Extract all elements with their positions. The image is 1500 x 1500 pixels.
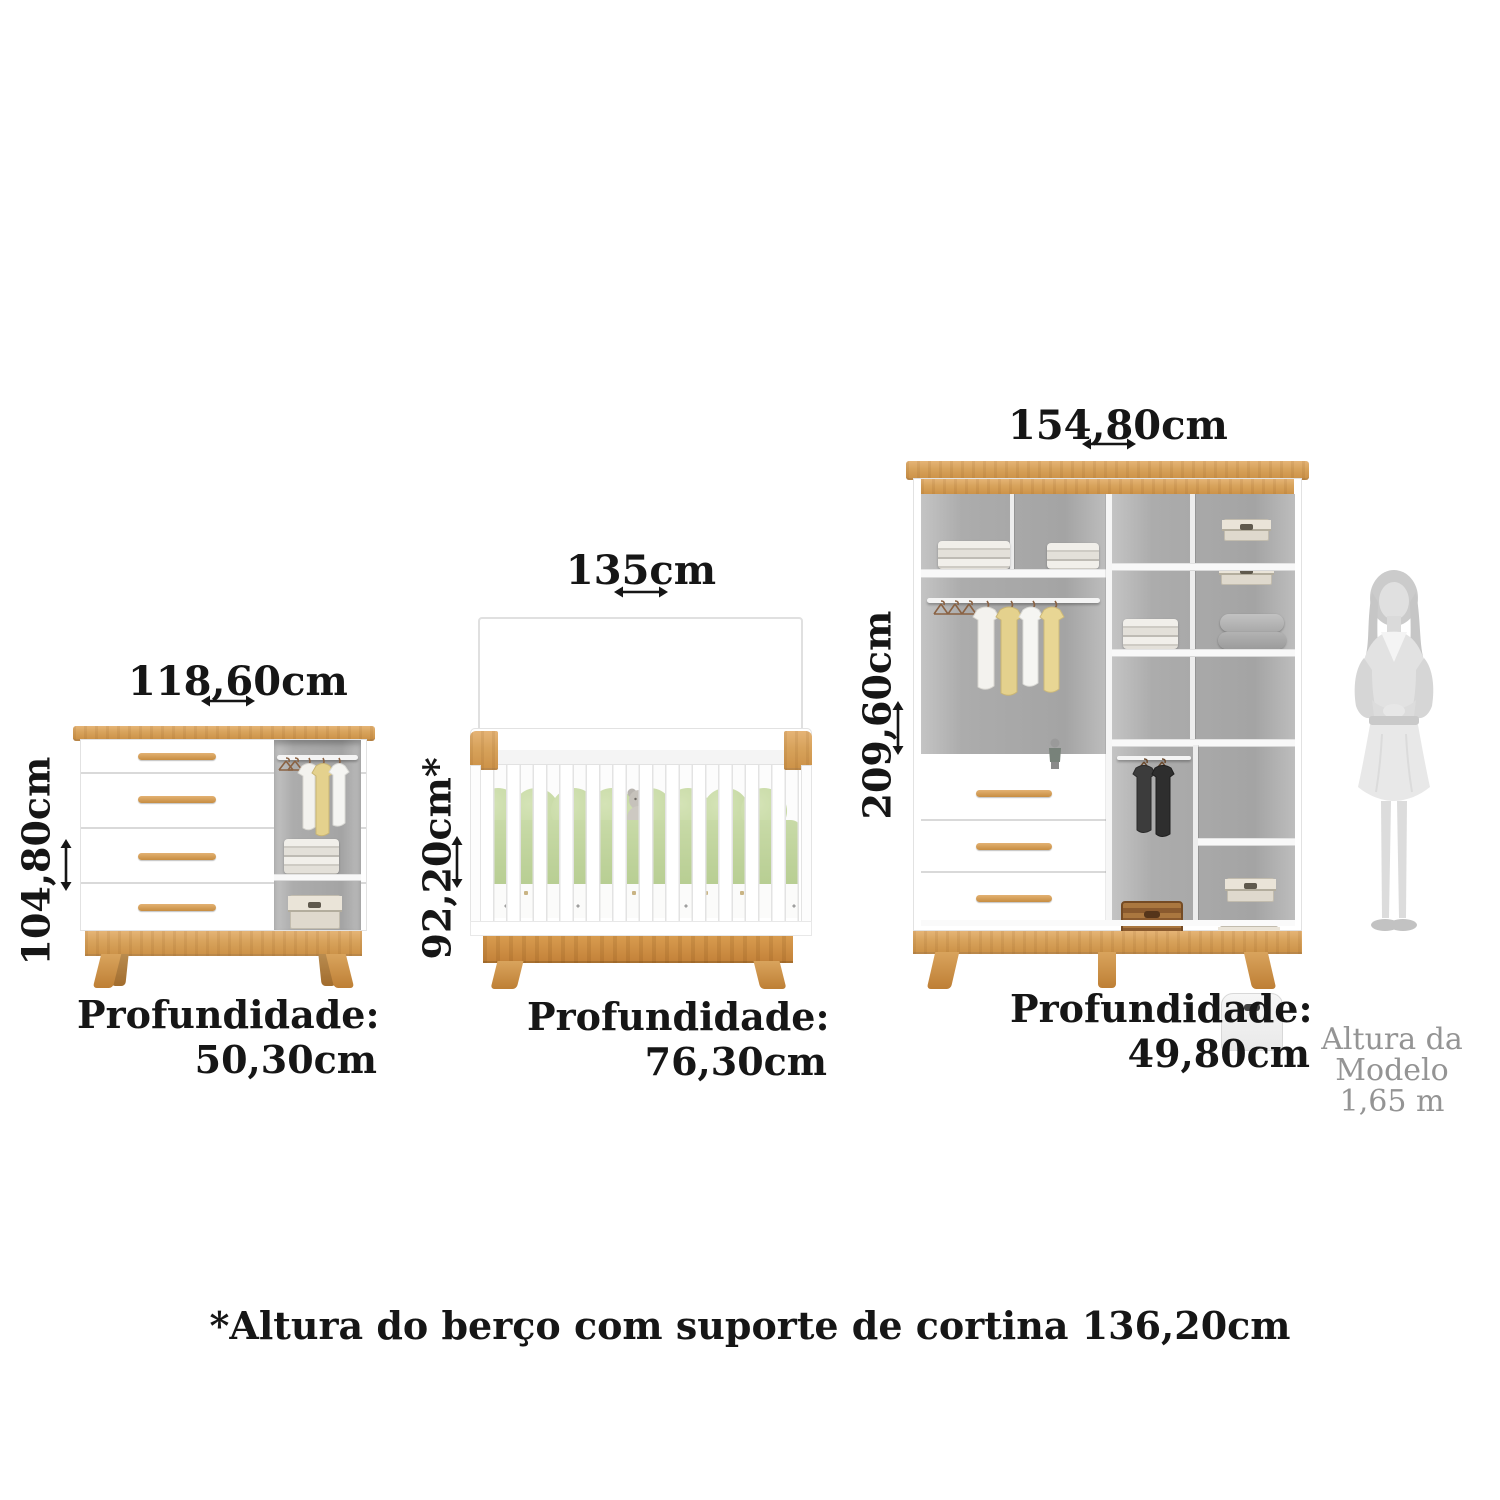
wardrobe-left-mullion — [1010, 494, 1014, 569]
crib-foot-right — [754, 961, 787, 989]
wardrobe-box-top-1 — [1224, 519, 1269, 541]
model-caption-line-1: Altura da — [1312, 1024, 1472, 1055]
dresser-drawer-2-handle — [138, 796, 216, 803]
crib-top-rail — [470, 728, 812, 765]
dresser-depth-title: Profundidade: — [77, 992, 377, 1037]
wardrobe-drawer-3-handle — [976, 895, 1052, 902]
crib-back-panel — [478, 617, 803, 737]
wardrobe-leg-middle — [1098, 952, 1116, 988]
dresser-body — [80, 739, 367, 931]
wardrobe-pillow-1 — [1220, 614, 1284, 632]
dresser-drawer-3-handle — [138, 853, 216, 860]
wardrobe-depth-value: 49,80cm — [1010, 1031, 1310, 1076]
wardrobe-left-shelf — [921, 569, 1106, 578]
dresser-height-arrow-icon — [59, 838, 73, 892]
wardrobe-drawer-1 — [921, 769, 1106, 821]
wardrobe-hanging-clothes — [929, 600, 1101, 700]
wardrobe-box-low-1 — [1227, 878, 1274, 902]
crib-slats — [481, 762, 801, 924]
wardrobe-right-mullion-upper — [1190, 494, 1195, 739]
wardrobe-left-section — [921, 494, 1106, 754]
wardrobe-base — [913, 931, 1302, 954]
wardrobe-body — [913, 478, 1302, 931]
wardrobe-right-shelf-2 — [1112, 649, 1295, 657]
wardrobe-folded-clothes-1 — [938, 541, 1010, 569]
wardrobe-right-shelf-1 — [1112, 563, 1295, 571]
wardrobe-drawer-2-handle — [976, 843, 1052, 850]
wardrobe-right-shelf-3 — [1112, 739, 1295, 747]
crib-depth-title: Profundidade: — [527, 994, 827, 1039]
crib-base — [483, 936, 793, 963]
crib-depth-label: Profundidade: 76,30cm — [527, 994, 827, 1084]
wardrobe-right-section — [1112, 494, 1295, 926]
crib-foot-left — [491, 961, 524, 989]
crib-depth-value: 76,30cm — [527, 1039, 827, 1084]
model-silhouette — [1326, 564, 1462, 952]
model-caption: Altura da Modelo 1,65 m — [1312, 1024, 1472, 1117]
wardrobe-drawer-1-handle — [976, 790, 1052, 797]
dresser-open-compartment — [274, 740, 361, 930]
wardrobe-depth-label: Profundidade: 49,80cm — [1010, 986, 1310, 1076]
wardrobe-pillow-2 — [1218, 632, 1286, 649]
wardrobe-folded-clothes-2 — [1047, 543, 1099, 569]
crib-width-arrow-icon — [613, 585, 669, 599]
wardrobe-drawers — [921, 769, 1106, 926]
wardrobe-leg-right — [1244, 952, 1277, 989]
wardrobe-interior-top-wood — [921, 479, 1294, 495]
dresser-storage-box — [290, 895, 340, 929]
dresser-hanging-clothes — [276, 757, 360, 841]
wardrobe-drawer-2 — [921, 821, 1106, 873]
dresser-height-label: 104,80cm — [14, 776, 59, 966]
crib-post-right — [801, 765, 812, 935]
dresser-depth-value: 50,30cm — [77, 1037, 377, 1082]
dresser-shelf — [274, 874, 361, 881]
wardrobe-folded-clothes-3 — [1123, 619, 1178, 649]
wardrobe-height-arrow-icon — [891, 700, 905, 756]
crib-bottom-rail — [470, 921, 812, 936]
wardrobe-right-mullion-lower — [1193, 745, 1198, 926]
dresser-drawer-1-handle — [138, 753, 216, 760]
model-caption-line-3: 1,65 m — [1312, 1086, 1472, 1117]
wardrobe-depth-title: Profundidade: — [1010, 986, 1310, 1031]
dresser-folded-clothes — [284, 839, 339, 874]
wardrobe-right-shelf-4 — [1198, 838, 1295, 846]
crib-height-arrow-icon — [450, 835, 464, 889]
wardrobe-figurine — [1044, 738, 1066, 770]
dresser-depth-label: Profundidade: 50,30cm — [77, 992, 377, 1082]
wardrobe-leg-left — [927, 952, 960, 989]
dresser-width-arrow-icon — [200, 694, 256, 708]
model-caption-line-2: Modelo — [1312, 1055, 1472, 1086]
wardrobe-width-arrow-icon — [1081, 437, 1137, 451]
nursery-furniture-dimensions-diagram: 118,60cm 104,80cm — [0, 0, 1500, 1500]
wardrobe-floor — [921, 920, 1295, 926]
footnote: *Altura do berço com suporte de cortina … — [150, 1303, 1350, 1348]
wardrobe-dark-clothes — [1124, 758, 1186, 842]
dresser-base — [85, 931, 362, 956]
wardrobe-drawer-3 — [921, 873, 1106, 926]
dresser-drawer-4-handle — [138, 904, 216, 911]
crib-post-left — [470, 765, 481, 935]
